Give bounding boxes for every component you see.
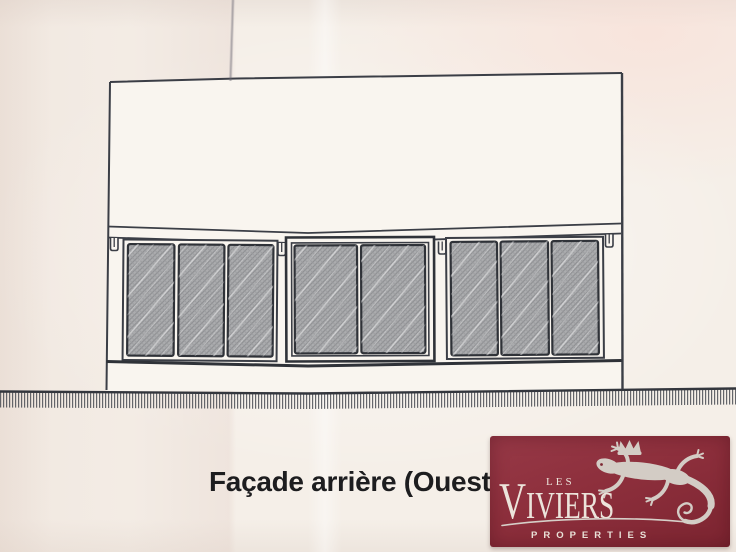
shutter-bracket [111, 238, 119, 251]
scanned-plan-photo: Façade arrière (Ouest) [0, 0, 736, 552]
shutter-bracket [439, 242, 447, 255]
drawing-caption: Façade arrière (Ouest) [209, 466, 500, 498]
ground [0, 389, 736, 410]
shutter-bracket [606, 235, 614, 248]
right-wall [622, 73, 623, 389]
sliding-door [286, 237, 434, 362]
window-group-right [446, 237, 604, 359]
logo-properties-text: PROPERTIES [531, 530, 652, 541]
shutter-bracket [278, 243, 286, 256]
agency-logo: LES VIVIERS PROPERTIES [490, 436, 730, 547]
window-group-left [123, 239, 278, 361]
